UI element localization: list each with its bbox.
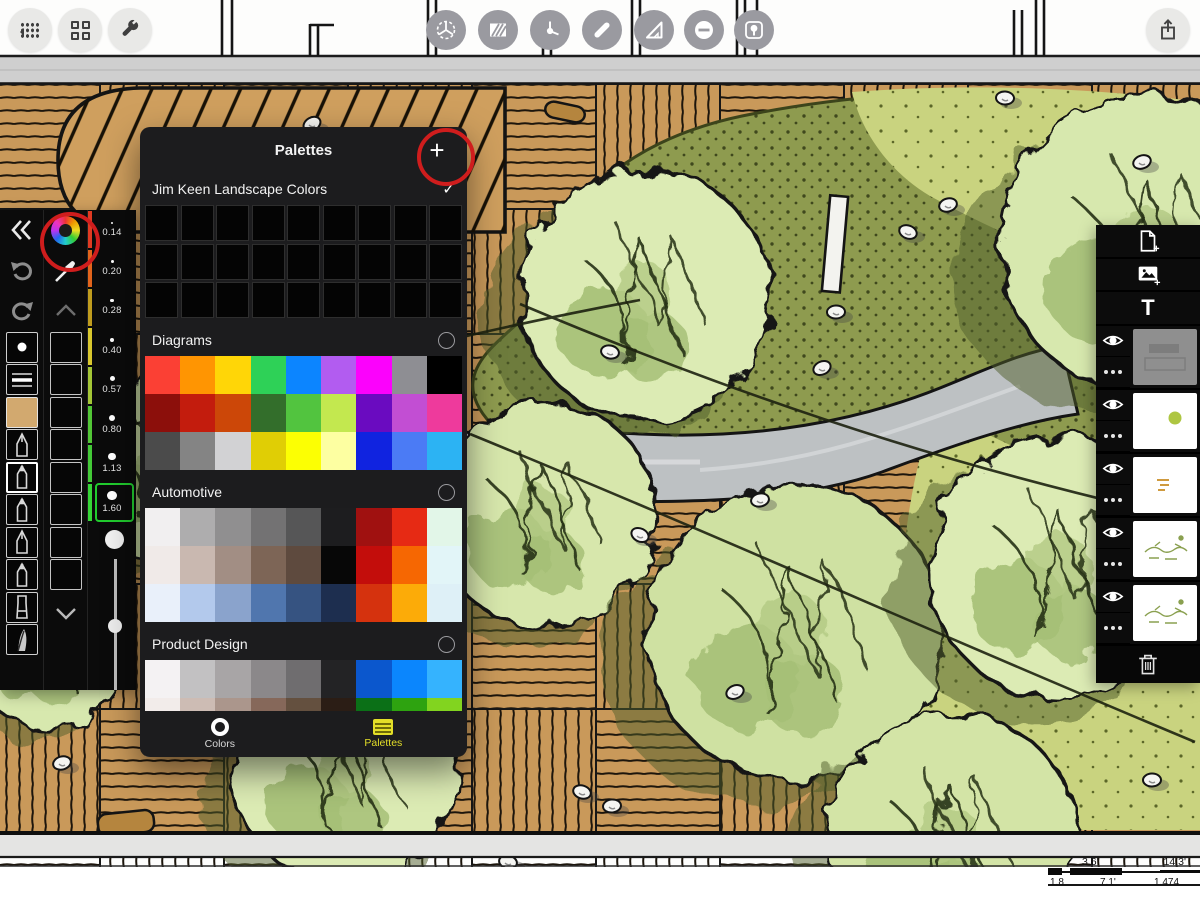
swatch[interactable]: [394, 282, 427, 318]
tool-pencil-5[interactable]: [6, 494, 38, 525]
swatch[interactable]: [392, 546, 427, 584]
swatch[interactable]: [180, 584, 215, 622]
transform-button[interactable]: [426, 10, 466, 50]
palette-name: Diagrams: [152, 332, 212, 348]
swatch[interactable]: [323, 282, 356, 318]
opacity-slider[interactable]: [88, 559, 136, 690]
layer-row-0[interactable]: [1096, 326, 1200, 390]
swatch[interactable]: [215, 546, 250, 584]
swatch[interactable]: [145, 546, 180, 584]
collapse-panel-button[interactable]: [2, 210, 42, 250]
tool-lines-1[interactable]: [6, 364, 38, 395]
palette-grid-0: [140, 205, 467, 324]
redo-arrow-icon: [9, 298, 35, 322]
swatch[interactable]: [287, 282, 320, 318]
swatch[interactable]: [145, 282, 178, 318]
tab-colors[interactable]: Colors: [205, 718, 235, 750]
brush-slot-empty-5[interactable]: [50, 494, 82, 525]
nudge-grid-button[interactable]: [8, 8, 52, 52]
layer-row-4[interactable]: [1096, 582, 1200, 646]
swatch[interactable]: [181, 282, 214, 318]
swatch[interactable]: [180, 394, 215, 432]
swatch[interactable]: [251, 584, 286, 622]
swatch[interactable]: [145, 584, 180, 622]
new-page-button[interactable]: [1096, 225, 1200, 259]
color-wheel-ring-icon: [211, 718, 229, 736]
swatch[interactable]: [287, 205, 320, 241]
delete-layer-button[interactable]: [1096, 646, 1200, 683]
swatch[interactable]: [286, 356, 321, 394]
tree-object-icon: [742, 18, 766, 42]
top-wall: [0, 56, 1200, 84]
swatch[interactable]: [216, 244, 249, 280]
checkmark-icon[interactable]: ✓: [442, 180, 455, 198]
tool-color-swatch-2[interactable]: [6, 397, 38, 428]
swatch[interactable]: [180, 508, 215, 546]
bottom-wall: [0, 833, 1200, 900]
undo-button[interactable]: [2, 250, 42, 290]
swatch[interactable]: [392, 584, 427, 622]
swatch[interactable]: [286, 508, 321, 546]
slider-handle[interactable]: [108, 619, 122, 633]
layer-visibility-toggle[interactable]: [1096, 454, 1130, 485]
swatch[interactable]: [215, 660, 250, 698]
stroke-size-0.80[interactable]: 0.80: [88, 405, 136, 444]
swatch[interactable]: [215, 432, 250, 470]
swatch[interactable]: [180, 546, 215, 584]
brush-slot-empty-6[interactable]: [50, 527, 82, 558]
swatch[interactable]: [321, 508, 356, 546]
ruler-dim-1: 1.8: [1050, 877, 1064, 888]
palettes-title: Palettes: [275, 142, 333, 159]
swatch[interactable]: [216, 205, 249, 241]
trash-icon: [1136, 651, 1160, 677]
swatch[interactable]: [427, 584, 462, 622]
stroke-preview-dot: [105, 530, 124, 549]
swatch[interactable]: [145, 508, 180, 546]
swatch[interactable]: [286, 660, 321, 698]
swatch[interactable]: [321, 394, 356, 432]
add-palette-button[interactable]: +: [419, 132, 455, 168]
slice-button[interactable]: [582, 10, 622, 50]
slice-pen-icon: [590, 18, 614, 42]
radio-icon[interactable]: [438, 484, 455, 501]
tool-pencil-4[interactable]: [6, 462, 38, 493]
layer-row-2[interactable]: [1096, 454, 1200, 518]
layer-thumbnail-3[interactable]: [1133, 521, 1197, 577]
ruler-value-right: 14.3': [1164, 856, 1186, 868]
stroke-size-0.20[interactable]: 0.20: [88, 249, 136, 288]
radio-icon[interactable]: [438, 332, 455, 349]
nudge-grid-icon: [20, 22, 41, 39]
gallery-button[interactable]: [58, 8, 102, 52]
brush-slot-empty-4[interactable]: [50, 462, 82, 493]
share-icon: [1156, 18, 1180, 42]
fill-hatch-icon: [486, 18, 510, 42]
layers-panel: T: [1096, 225, 1200, 683]
ruler-dim-2: 7.1': [1100, 877, 1116, 888]
tool-brush-9[interactable]: [6, 624, 38, 655]
swatch[interactable]: [358, 205, 391, 241]
swatch[interactable]: [180, 432, 215, 470]
settings-button[interactable]: [108, 8, 152, 52]
triangle-ruler-icon: [642, 18, 666, 42]
brush-slot-empty-0[interactable]: [50, 332, 82, 363]
swatch[interactable]: [145, 205, 178, 241]
swatch[interactable]: [251, 508, 286, 546]
stroke-size-0.28[interactable]: 0.28: [88, 288, 136, 327]
chevron-down-icon: [54, 607, 78, 621]
stroke-size-1.13[interactable]: 1.13: [88, 444, 136, 483]
swatch[interactable]: [427, 508, 462, 546]
palette-grid-1: [140, 356, 467, 476]
brush-slot-empty-3[interactable]: [50, 429, 82, 460]
layer-menu-button[interactable]: [1096, 549, 1130, 580]
swatch[interactable]: [427, 394, 462, 432]
layer-thumbnail-2[interactable]: [1133, 457, 1197, 513]
stroke-size-0.14[interactable]: 0.14: [88, 210, 136, 249]
tool-pen-nib-6[interactable]: [6, 527, 38, 558]
undo-arrow-icon: [9, 258, 35, 282]
tool-dot-0[interactable]: [6, 332, 38, 363]
swatch[interactable]: [286, 394, 321, 432]
swatch[interactable]: [321, 432, 356, 470]
swatch[interactable]: [145, 432, 180, 470]
layer-visibility-toggle[interactable]: [1096, 582, 1130, 613]
scroll-up-button[interactable]: [46, 290, 86, 330]
swatch[interactable]: [427, 356, 462, 394]
tab-palettes[interactable]: Palettes: [364, 719, 402, 749]
measure-button[interactable]: [530, 10, 570, 50]
chevron-up-icon: [54, 303, 78, 317]
palette-grid-2: [140, 508, 467, 628]
swatch[interactable]: [356, 394, 391, 432]
swatch[interactable]: [358, 244, 391, 280]
gallery-grid-icon: [71, 21, 90, 40]
radio-icon[interactable]: [438, 636, 455, 653]
palette-stack-icon: [373, 719, 393, 735]
layer-row-1[interactable]: [1096, 390, 1200, 454]
mask-minus-icon: [692, 18, 716, 42]
swatch[interactable]: [427, 660, 462, 698]
swatch[interactable]: [216, 282, 249, 318]
eyedropper-icon: [53, 257, 79, 283]
swatch[interactable]: [356, 546, 391, 584]
layer-menu-button[interactable]: [1096, 357, 1130, 388]
swatch[interactable]: [145, 394, 180, 432]
ruler-dim-3: 1.474: [1154, 877, 1179, 888]
fill-button[interactable]: [478, 10, 518, 50]
swatch[interactable]: [286, 546, 321, 584]
redo-button[interactable]: [2, 290, 42, 330]
swatch[interactable]: [392, 356, 427, 394]
share-button[interactable]: [1146, 8, 1190, 52]
swatch[interactable]: [145, 660, 180, 698]
brush-slot-empty-7[interactable]: [50, 559, 82, 590]
swatch[interactable]: [252, 205, 285, 241]
swatch[interactable]: [392, 660, 427, 698]
layer-menu-button[interactable]: [1096, 421, 1130, 452]
swatch[interactable]: [180, 660, 215, 698]
mask-button[interactable]: [684, 10, 724, 50]
add-image-icon: [1135, 262, 1161, 286]
tool-pen-nib-3[interactable]: [6, 429, 38, 460]
layer-thumbnail-1[interactable]: [1133, 393, 1197, 449]
swatch[interactable]: [358, 282, 391, 318]
swatch[interactable]: [252, 282, 285, 318]
color-wheel-icon: [51, 216, 80, 245]
guide-button[interactable]: [634, 10, 674, 50]
swatch[interactable]: [392, 508, 427, 546]
swatch[interactable]: [286, 584, 321, 622]
swatch[interactable]: [251, 660, 286, 698]
swatch[interactable]: [145, 356, 180, 394]
stroke-size-0.40[interactable]: 0.40: [88, 327, 136, 366]
swatch[interactable]: [181, 244, 214, 280]
brush-slot-empty-1[interactable]: [50, 364, 82, 395]
eyedropper-button[interactable]: [46, 250, 86, 290]
swatch[interactable]: [252, 244, 285, 280]
palette-header-1[interactable]: Diagrams: [140, 324, 467, 356]
stroke-size-0.57[interactable]: 0.57: [88, 366, 136, 405]
layer-menu-button[interactable]: [1096, 613, 1130, 644]
swatch[interactable]: [356, 432, 391, 470]
swatch[interactable]: [215, 394, 250, 432]
swatch[interactable]: [323, 205, 356, 241]
scale-ruler: 3.6' 14.3' 1.8 7.1' 1.474: [1048, 856, 1200, 896]
add-text-button[interactable]: T: [1096, 292, 1200, 326]
swatch[interactable]: [429, 244, 462, 280]
palettes-popup: Palettes + Jim Keen Landscape Colors✓Dia…: [140, 127, 467, 757]
object-button[interactable]: [734, 10, 774, 50]
add-image-button[interactable]: [1096, 259, 1200, 293]
new-page-icon: [1135, 228, 1161, 254]
swatch[interactable]: [321, 356, 356, 394]
swatch[interactable]: [321, 584, 356, 622]
color-wheel-button[interactable]: [46, 210, 86, 250]
layer-thumbnail-0[interactable]: [1133, 329, 1197, 385]
layer-menu-button[interactable]: [1096, 485, 1130, 516]
swatch[interactable]: [287, 244, 320, 280]
swatch[interactable]: [429, 205, 462, 241]
layer-visibility-toggle[interactable]: [1096, 518, 1130, 549]
stroke-size-1.60[interactable]: 1.60: [88, 483, 136, 522]
swatch[interactable]: [251, 432, 286, 470]
swatch[interactable]: [215, 584, 250, 622]
swatch[interactable]: [394, 244, 427, 280]
swatch[interactable]: [321, 546, 356, 584]
scroll-down-button[interactable]: [46, 594, 86, 634]
chevron-double-left-icon: [8, 217, 36, 243]
swatch[interactable]: [251, 546, 286, 584]
palette-header-0[interactable]: Jim Keen Landscape Colors✓: [140, 173, 467, 205]
layer-row-3[interactable]: [1096, 518, 1200, 582]
rotate-sphere-icon: [434, 18, 458, 42]
add-text-icon: T: [1141, 295, 1154, 321]
measure-compass-icon: [538, 18, 562, 42]
tool-panel: 0.140.200.280.400.570.801.131.60: [0, 210, 136, 690]
layer-thumbnail-4[interactable]: [1133, 585, 1197, 641]
swatch[interactable]: [392, 432, 427, 470]
swatch[interactable]: [251, 356, 286, 394]
swatch[interactable]: [427, 432, 462, 470]
tool-marker-8[interactable]: [6, 592, 38, 623]
ruler-value-left: 3.6': [1082, 856, 1099, 868]
swatch[interactable]: [180, 356, 215, 394]
layer-visibility-toggle[interactable]: [1096, 390, 1130, 421]
swatch[interactable]: [323, 244, 356, 280]
palette-header-3[interactable]: Product Design: [140, 628, 467, 660]
palette-header-2[interactable]: Automotive: [140, 476, 467, 508]
swatch[interactable]: [251, 394, 286, 432]
swatch[interactable]: [427, 546, 462, 584]
palette-name: Jim Keen Landscape Colors: [152, 181, 327, 197]
swatch[interactable]: [286, 432, 321, 470]
palette-name: Automotive: [152, 484, 222, 500]
settings-wrench-icon: [118, 18, 142, 42]
swatch[interactable]: [356, 660, 391, 698]
swatch[interactable]: [394, 205, 427, 241]
swatch[interactable]: [356, 356, 391, 394]
swatch[interactable]: [181, 205, 214, 241]
layer-visibility-toggle[interactable]: [1096, 326, 1130, 357]
swatch[interactable]: [215, 356, 250, 394]
palette-name: Product Design: [152, 636, 248, 652]
swatch[interactable]: [356, 584, 391, 622]
swatch[interactable]: [215, 508, 250, 546]
swatch[interactable]: [392, 394, 427, 432]
swatch[interactable]: [429, 282, 462, 318]
brush-slot-empty-2[interactable]: [50, 397, 82, 428]
swatch[interactable]: [356, 508, 391, 546]
swatch[interactable]: [321, 660, 356, 698]
tool-pencil-7[interactable]: [6, 559, 38, 590]
swatch[interactable]: [145, 244, 178, 280]
